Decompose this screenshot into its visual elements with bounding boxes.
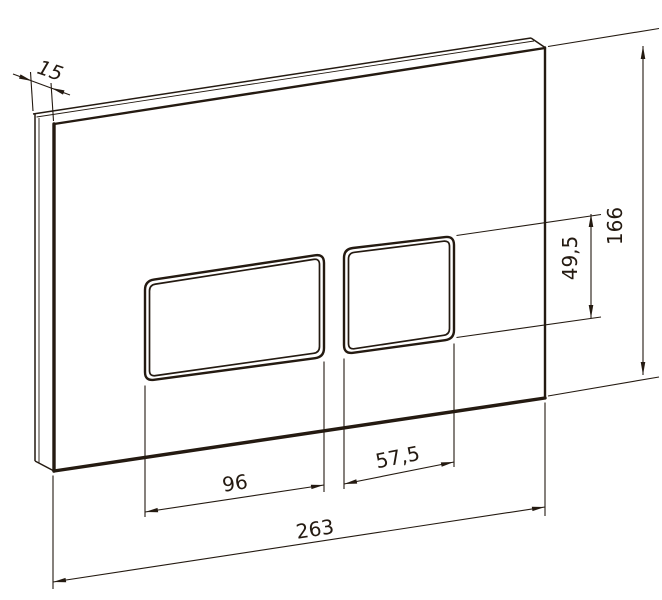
- arrowhead: [641, 46, 646, 59]
- extension-line: [31, 72, 34, 111]
- arrowhead: [311, 485, 324, 489]
- arrowhead: [441, 462, 454, 467]
- technical-drawing-canvas: 15 166 49,5 96 57,5: [0, 0, 662, 600]
- dimension-plate-height: 166: [548, 29, 659, 397]
- plate-front-top-edge: [54, 48, 545, 124]
- dimension-small-button-width: 57,5: [344, 344, 454, 490]
- plate-top-right-corner-edge: [531, 38, 545, 48]
- extension-line: [548, 29, 659, 47]
- dimension-plate-thickness: 15: [13, 55, 70, 121]
- small-flush-button: [344, 237, 454, 353]
- arrowhead: [641, 362, 646, 375]
- plate-side-bottom-edge: [35, 461, 54, 471]
- plate-front-bottom-edge: [54, 398, 545, 471]
- dim-label-plate-height: 166: [603, 207, 627, 245]
- plate-top-mid-highlight: [37, 41, 535, 117]
- large-flush-button: [145, 255, 324, 380]
- dim-label-large-button-width: 96: [221, 469, 250, 497]
- dimension-button-height: 49,5: [457, 214, 602, 338]
- dim-label-plate-thickness: 15: [34, 55, 66, 86]
- arrowhead: [19, 74, 32, 81]
- flush-plate: [33, 38, 545, 471]
- small-button-inner-rim: [349, 241, 450, 349]
- dimension-large-button-width: 96: [145, 362, 324, 518]
- extension-line: [548, 377, 659, 396]
- dim-label-button-height: 49,5: [558, 236, 582, 281]
- large-button-outer-rim: [145, 255, 324, 380]
- arrowhead: [532, 507, 545, 511]
- dimension-line: [53, 507, 545, 582]
- arrowhead: [589, 305, 594, 318]
- extension-line: [457, 317, 602, 338]
- extension-line: [457, 215, 602, 236]
- dim-label-small-button-width: 57,5: [373, 441, 421, 473]
- arrowhead: [52, 88, 65, 95]
- flush-plate-dimension-drawing: 15 166 49,5 96 57,5: [0, 0, 662, 600]
- arrowhead: [145, 508, 158, 512]
- plate-top-back-edge: [33, 38, 531, 114]
- arrowhead: [344, 479, 357, 484]
- dimension-plate-width: 263: [53, 403, 545, 590]
- arrowhead: [53, 578, 66, 582]
